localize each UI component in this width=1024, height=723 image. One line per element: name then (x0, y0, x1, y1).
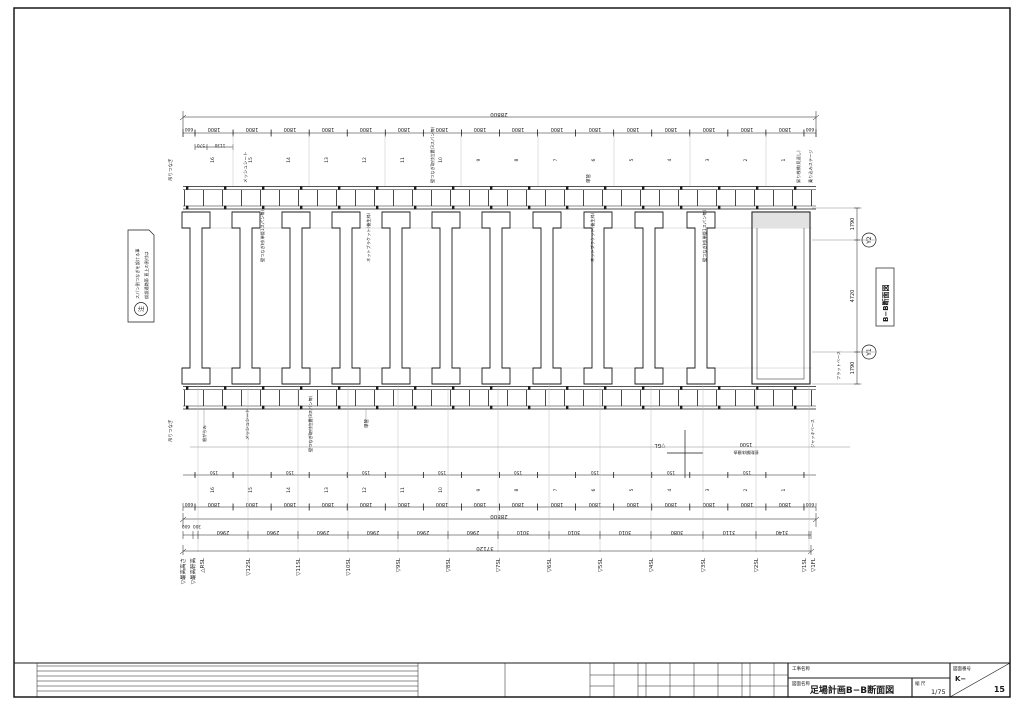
svg-text:Y1: Y1 (866, 348, 873, 357)
svg-text:3: 3 (705, 158, 711, 161)
svg-text:150: 150 (286, 470, 294, 475)
svg-text:12: 12 (362, 157, 368, 163)
svg-text:150: 150 (514, 470, 522, 475)
drawing-name-label: 図面名称 (792, 680, 810, 687)
level-labels: ▽最高高さ ▽最高軒高 △RSL ▽12SL ▽11SL ▽10SL ▽9SL … (179, 557, 817, 584)
svg-text:150: 150 (667, 470, 675, 475)
svg-text:1800: 1800 (665, 126, 678, 132)
svg-text:600: 600 (806, 501, 815, 507)
svg-text:150: 150 (362, 470, 370, 475)
drawing-number-label: 図面番号 (953, 665, 971, 672)
note-box: 注 仮設通路帯 直上の割付は スパン割つなぎを設ける事 (128, 230, 154, 322)
svg-text:1800: 1800 (474, 126, 487, 132)
project-name-label: 工事名称 (792, 665, 810, 672)
wall-tie-position-label: 壁つなぎ取付位置(3スパン毎) (429, 126, 436, 183)
wall-tie-member-label: 壁つなぎ材(単管1スパン毎) (701, 209, 708, 262)
svg-text:10: 10 (438, 487, 444, 493)
drawing-sheet-page: 28800 600 600 1800 1800 1800 1800 1800 1… (0, 0, 1024, 723)
svg-text:9: 9 (476, 158, 482, 161)
svg-text:3010: 3010 (517, 529, 530, 535)
drawing-title: 足場計画B−B断面図 (810, 684, 894, 696)
tie-label: 吊りつなぎ (167, 419, 174, 442)
svg-text:150: 150 (591, 470, 599, 475)
stair-landing-label: 昇り桟橋(見返し) (795, 150, 802, 183)
svg-text:1800: 1800 (284, 501, 297, 507)
end-dim: 600 (185, 126, 194, 132)
svg-text:4720: 4720 (850, 290, 856, 303)
svg-text:2: 2 (743, 158, 749, 161)
top-total-dim: 28800 (490, 111, 508, 117)
revision-table (37, 663, 788, 697)
svg-text:▽5SL: ▽5SL (598, 557, 604, 572)
svg-text:1800: 1800 (512, 126, 525, 132)
svg-text:▽1FL: ▽1FL (811, 557, 817, 572)
svg-text:1800: 1800 (246, 126, 259, 132)
svg-text:600: 600 (185, 501, 194, 507)
svg-text:1800: 1800 (627, 126, 640, 132)
svg-text:1800: 1800 (589, 501, 602, 507)
base-tie-label: 根がらみ (201, 425, 208, 442)
svg-text:13: 13 (324, 157, 330, 163)
note-mark: 注 (138, 306, 146, 312)
svg-text:5: 5 (629, 158, 635, 161)
bottom-annotations: 吊りつなぎ 根がらみ メッシュシート 壁つなぎ取付位置(3スパン毎) 単管 ジャ… (167, 351, 842, 452)
net-bracket-label: ネットブラケット(養生枠) (589, 212, 596, 262)
svg-text:2960: 2960 (217, 529, 230, 535)
level-chain: 600 300 2960 2960 2960 2960 2960 2960 30… (182, 524, 811, 539)
svg-text:1800: 1800 (779, 501, 792, 507)
single-pipe-label: 単管 (585, 174, 592, 183)
svg-text:1800: 1800 (779, 126, 792, 132)
svg-text:1800: 1800 (436, 126, 449, 132)
svg-text:▽最高高さ: ▽最高高さ (179, 558, 187, 584)
svg-text:▽9SL: ▽9SL (396, 557, 402, 572)
scale-value: 1/75 (931, 688, 946, 696)
sub-dim: 570 (197, 143, 205, 148)
svg-text:5: 5 (629, 488, 635, 491)
svg-text:▽8SL: ▽8SL (446, 557, 452, 572)
svg-text:150: 150 (210, 470, 218, 475)
top-bay-numbers: 16 15 14 13 12 11 10 9 8 7 6 5 4 3 2 1 (210, 157, 787, 163)
svg-text:1800: 1800 (436, 501, 449, 507)
top-bay-chain: 600 600 1800 1800 1800 1800 1800 1800 18… (183, 126, 816, 150)
svg-text:1800: 1800 (398, 501, 411, 507)
svg-text:▽11SL: ▽11SL (296, 557, 302, 576)
svg-text:1800: 1800 (398, 126, 411, 132)
svg-text:1800: 1800 (208, 126, 221, 132)
svg-text:1800: 1800 (208, 501, 221, 507)
boarding-stage-label: 乗り込みステージ (807, 150, 814, 183)
wall-tie-member-label: 壁つなぎ材(単管1スパン毎) (259, 209, 266, 262)
svg-text:3080: 3080 (671, 529, 684, 535)
section-title: B−B断面図 (881, 284, 890, 322)
svg-text:Y2: Y2 (866, 236, 873, 245)
svg-text:1800: 1800 (360, 126, 373, 132)
svg-text:2960: 2960 (467, 529, 480, 535)
wall-tie-position-label: 壁つなぎ取付位置(3スパン毎) (307, 395, 314, 452)
svg-text:11: 11 (400, 157, 406, 163)
svg-text:1800: 1800 (741, 501, 754, 507)
cad-sheet: 28800 600 600 1800 1800 1800 1800 1800 1… (0, 0, 1024, 723)
svg-text:6: 6 (591, 158, 597, 161)
svg-text:600: 600 (182, 524, 190, 529)
svg-text:2: 2 (743, 488, 749, 491)
svg-text:150: 150 (743, 470, 751, 475)
svg-text:△RSL: △RSL (200, 557, 206, 573)
svg-text:▽3SL: ▽3SL (701, 557, 707, 572)
gl-label: ▽GL (655, 442, 666, 448)
scale-label: 縮 尺 (915, 680, 926, 687)
svg-text:300: 300 (193, 524, 201, 529)
svg-text:1800: 1800 (284, 126, 297, 132)
scaffold-band-bottom (183, 387, 816, 410)
drawing-info-block: 工事名称 図面名称 足場計画B−B断面図 縮 尺 1/75 図面番号 K− 15 (788, 663, 1010, 697)
excavation-note: 掘削解体撤去 (733, 449, 758, 456)
svg-text:2960: 2960 (317, 529, 330, 535)
sub-dim: 1130 (214, 143, 225, 148)
excavation-depth: 1500 (740, 441, 753, 447)
single-pipe-label: 単管 (363, 419, 370, 428)
svg-text:16: 16 (210, 157, 216, 163)
svg-text:3010: 3010 (619, 529, 632, 535)
svg-text:3110: 3110 (723, 529, 736, 535)
drawing-number-prefix: K− (955, 675, 966, 683)
bottom-overall-dimension: 28800 (180, 513, 819, 527)
bottom-bay-numbers: 16 15 14 13 12 11 10 9 8 7 6 5 4 3 2 1 (210, 487, 787, 493)
svg-text:10: 10 (438, 157, 444, 163)
svg-text:1800: 1800 (474, 501, 487, 507)
drawing-number-value: 15 (994, 685, 1006, 694)
flat-base-label: フラットベース (836, 351, 842, 380)
svg-text:3140: 3140 (776, 529, 789, 535)
svg-text:1800: 1800 (703, 126, 716, 132)
svg-text:11: 11 (400, 487, 406, 493)
svg-text:▽2SL: ▽2SL (754, 557, 760, 572)
svg-text:1800: 1800 (551, 126, 564, 132)
tie-offset-chain: 150 150 150 150 150 150 150 150 (183, 470, 816, 475)
svg-text:4: 4 (667, 158, 673, 161)
svg-text:8: 8 (514, 158, 520, 161)
svg-text:4: 4 (667, 488, 673, 491)
svg-text:3010: 3010 (568, 529, 581, 535)
svg-text:1800: 1800 (589, 126, 602, 132)
svg-text:6: 6 (591, 488, 597, 491)
svg-text:2960: 2960 (267, 529, 280, 535)
net-bracket-label: ネットブラケット(養生枠) (365, 212, 372, 262)
svg-text:1: 1 (781, 488, 787, 491)
svg-text:2960: 2960 (367, 529, 380, 535)
svg-text:8: 8 (514, 488, 520, 491)
end-wall (752, 212, 810, 384)
svg-text:1800: 1800 (246, 501, 259, 507)
top-annotations: 吊りつなぎ メッシュシート 壁つなぎ取付位置(3スパン毎) 単管 昇り桟橋(見返… (167, 126, 814, 183)
svg-text:▽6SL: ▽6SL (547, 557, 553, 572)
scaffold-band-top (183, 187, 816, 210)
svg-text:▽10SL: ▽10SL (346, 557, 352, 576)
right-dimension-chain: 1790 4720 1790 Y2 Y1 (812, 208, 876, 384)
svg-text:1790: 1790 (850, 362, 856, 375)
svg-text:▽最高軒高: ▽最高軒高 (189, 558, 197, 585)
end-dim: 600 (806, 126, 815, 132)
svg-text:16: 16 (210, 487, 216, 493)
svg-text:▽7SL: ▽7SL (496, 557, 502, 572)
svg-text:2960: 2960 (417, 529, 430, 535)
tie-label: 吊りつなぎ (167, 158, 174, 181)
note-line1: 仮設通路帯 直上の割付は (143, 252, 150, 299)
svg-text:150: 150 (438, 470, 446, 475)
svg-text:1800: 1800 (512, 501, 525, 507)
svg-text:▽4SL: ▽4SL (649, 557, 655, 572)
section-title-box: B−B断面図 (876, 268, 894, 326)
level-total-dimension: 37120 (180, 545, 814, 555)
svg-text:▽1SL: ▽1SL (802, 557, 808, 572)
svg-text:1800: 1800 (703, 501, 716, 507)
svg-text:1800: 1800 (360, 501, 373, 507)
jack-base-label: ジャッキベース (810, 419, 815, 448)
svg-text:3: 3 (705, 488, 711, 491)
svg-text:28800: 28800 (490, 513, 508, 519)
svg-text:13: 13 (324, 487, 330, 493)
svg-text:1800: 1800 (741, 126, 754, 132)
mesh-sheet-label: メッシュシート (246, 409, 251, 441)
svg-text:14: 14 (286, 157, 292, 163)
svg-text:1800: 1800 (665, 501, 678, 507)
svg-text:1800: 1800 (322, 126, 335, 132)
svg-text:9: 9 (476, 488, 482, 491)
svg-text:1800: 1800 (627, 501, 640, 507)
svg-text:12: 12 (362, 487, 368, 493)
mesh-sheet-label: メッシュシート (244, 152, 249, 184)
floor-section-units: 壁つなぎ材(単管1スパン毎) ネットブラケット(養生枠) ネットブラケット(養生… (182, 209, 812, 384)
svg-text:1800: 1800 (551, 501, 564, 507)
svg-text:7: 7 (553, 488, 559, 491)
svg-text:37120: 37120 (476, 545, 494, 551)
title-block: 工事名称 図面名称 足場計画B−B断面図 縮 尺 1/75 図面番号 K− 15 (14, 663, 1010, 697)
svg-text:1: 1 (781, 158, 787, 161)
top-grid-lines (233, 135, 766, 186)
svg-text:1790: 1790 (850, 218, 856, 231)
sheet-frame (14, 8, 1010, 697)
svg-text:14: 14 (286, 487, 292, 493)
svg-text:▽12SL: ▽12SL (246, 557, 252, 576)
svg-text:7: 7 (553, 158, 559, 161)
bottom-bay-chain: 600 600 1800 1800 1800 1800 1800 1800 18… (183, 501, 816, 511)
note-line2: スパン割つなぎを設ける事 (134, 249, 141, 299)
svg-text:1800: 1800 (322, 501, 335, 507)
svg-text:15: 15 (248, 487, 254, 493)
